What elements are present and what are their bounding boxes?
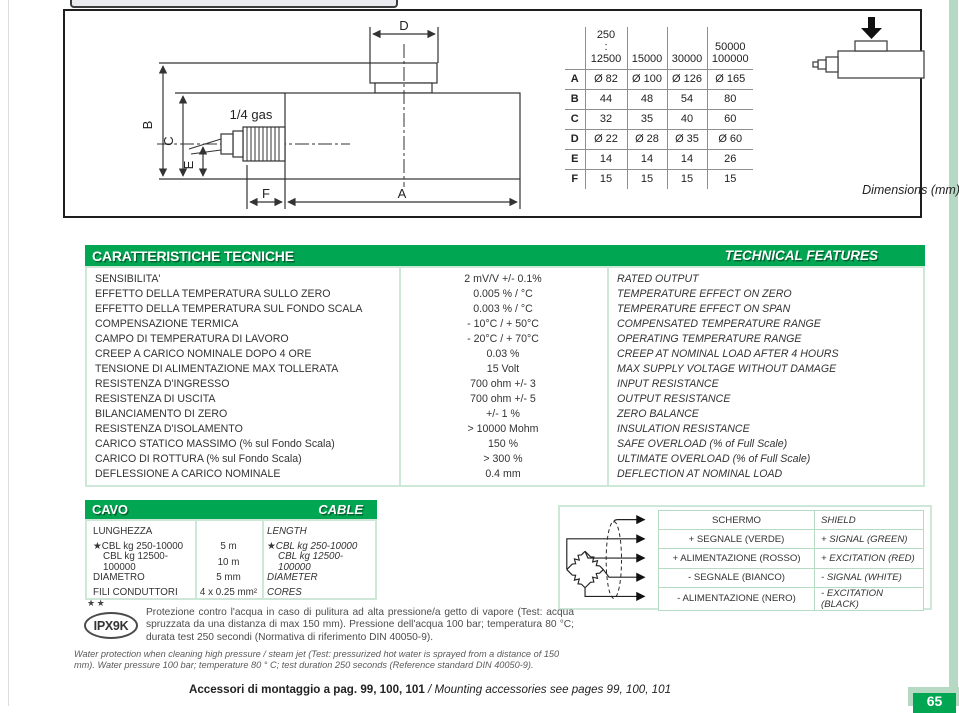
footer-text-en: / Mounting accessories see pages 99, 100… (425, 683, 671, 696)
protection-note-it: Protezione contro l'acqua in caso di pul… (146, 607, 574, 644)
tech-features-table: SENSIBILITA'2 mV/V +/- 0.1%RATED OUTPUT … (85, 266, 925, 487)
top-tab-remnant (70, 0, 398, 8)
dims-row-e: E 14 14 14 26 (565, 149, 753, 169)
right-green-stripe (949, 0, 958, 706)
tech-divider-2 (607, 268, 609, 485)
page-number: 65 (927, 693, 943, 709)
tech-row: CREEP A CARICO NOMINALE DOPO 4 ORE0.03 %… (87, 346, 923, 361)
dim-label-c: C (161, 136, 176, 145)
tech-row: DEFLESSIONE A CARICO NOMINALE0.4 mmDEFLE… (87, 467, 923, 482)
cable-row: DIAMETRO5 mmDIAMETER (87, 570, 375, 585)
dim-label-f: F (262, 186, 270, 201)
dimensions-table: 250 : 12500 15000 30000 50000 100000 A Ø… (565, 27, 753, 189)
dims-corner-cell (565, 27, 585, 69)
dimensions-note: Dimensions (mm) (787, 183, 959, 197)
wiring-row: - ALIMENTAZIONE (NERO)- EXCITATION (BLAC… (659, 587, 924, 610)
dims-row-d: D Ø 22 Ø 28 Ø 35 Ø 60 (565, 129, 753, 149)
tech-title-it: CARATTERISTICHE TECNICHE (92, 248, 294, 264)
tech-row: COMPENSAZIONE TERMICA- 10°C / + 50°CCOMP… (87, 316, 923, 331)
down-arrow-icon (861, 17, 882, 39)
cable-divider-2 (262, 521, 264, 598)
dims-capacity-header: 30000 (667, 27, 707, 69)
dims-row-b: B 44 48 54 80 (565, 89, 753, 109)
dims-row-c: C 32 35 40 60 (565, 109, 753, 129)
wiring-row: SCHERMOSHIELD (659, 511, 924, 530)
dimension-drawing-panel: D B C E F A 1/4 gas 250 : 12500 15000 30… (63, 9, 922, 218)
cable-row: LUNGHEZZALENGTH (87, 524, 375, 539)
cable-row: CBL kg 12500-10000010 mCBL kg 12500-1000… (87, 555, 375, 570)
tech-row: EFFETTO DELLA TEMPERATURA SUL FONDO SCAL… (87, 301, 923, 316)
tech-row: CAMPO DI TEMPERATURA DI LAVORO- 20°C / +… (87, 331, 923, 346)
cable-title-it: CAVO (92, 502, 128, 517)
wiring-panel: SCHERMOSHIELD + SEGNALE (VERDE)+ SIGNAL … (558, 505, 932, 610)
load-cell-icon (810, 15, 935, 87)
tech-row: BILANCIAMENTO DI ZERO+/- 1 %ZERO BALANCE (87, 406, 923, 421)
protection-note-en: Water protection when cleaning high pres… (74, 649, 582, 670)
tech-row: CARICO STATICO MASSIMO (% sul Fondo Scal… (87, 437, 923, 452)
dims-capacity-header: 50000 100000 (707, 27, 753, 69)
wiring-row: + ALIMENTAZIONE (ROSSO)+ EXCITATION (RED… (659, 549, 924, 568)
page-number-badge: 65 (913, 693, 956, 713)
dim-label-a: A (398, 186, 407, 201)
dim-label-b: B (140, 121, 155, 130)
page-edge-line (8, 0, 9, 706)
dims-capacity-header: 250 : 12500 (585, 27, 627, 69)
cable-divider-1 (195, 521, 197, 598)
ipx9k-badge: IPX9K (84, 612, 138, 639)
gas-thread-label: 1/4 gas (230, 107, 273, 122)
tech-row: CARICO DI ROTTURA (% sul Fondo Scala)> 3… (87, 452, 923, 467)
dims-row-a: A Ø 82 Ø 100 Ø 126 Ø 165 (565, 69, 753, 89)
footer-text-it: Accessori di montaggio a pag. 99, 100, 1… (189, 683, 425, 696)
tech-row: SENSIBILITA'2 mV/V +/- 0.1%RATED OUTPUT (87, 271, 923, 286)
wiring-row: - SEGNALE (BIANCO)- SIGNAL (WHITE) (659, 568, 924, 587)
tech-features-header: CARATTERISTICHE TECNICHE TECHNICAL FEATU… (85, 245, 925, 266)
dim-label-e: E (181, 160, 196, 169)
tech-row: EFFETTO DELLA TEMPERATURA SULLO ZERO0.00… (87, 286, 923, 301)
tech-row: TENSIONE DI ALIMENTAZIONE MAX TOLLERATA1… (87, 361, 923, 376)
tech-row: RESISTENZA D'INGRESSO700 ohm +/- 3INPUT … (87, 376, 923, 391)
dims-row-f: F 15 15 15 15 (565, 169, 753, 189)
cable-table: LUNGHEZZALENGTH ★CBL kg 250-100005 m★CBL… (85, 519, 377, 600)
footer-accessories: Accessori di montaggio a pag. 99, 100, 1… (110, 683, 750, 696)
tech-title-en: TECHNICAL FEATURES (725, 248, 878, 263)
wiring-table: SCHERMOSHIELD + SEGNALE (VERDE)+ SIGNAL … (658, 510, 924, 611)
bridge-diagram (562, 510, 658, 607)
tech-divider-1 (399, 268, 401, 485)
cable-title-en: CABLE (318, 502, 363, 517)
cable-header: CAVO CABLE (85, 500, 377, 519)
tech-row: RESISTENZA D'ISOLAMENTO> 10000 MohmINSUL… (87, 421, 923, 436)
load-cell-drawing: D B C E F A 1/4 gas (75, 13, 575, 215)
tech-row: RESISTENZA DI USCITA700 ohm +/- 5OUTPUT … (87, 391, 923, 406)
dims-capacity-header: 15000 (627, 27, 667, 69)
cable-row: FILI CONDUTTORI4 x 0.25 mm²CORES (87, 585, 375, 600)
wiring-row: + SEGNALE (VERDE)+ SIGNAL (GREEN) (659, 530, 924, 549)
star-marker: ★★ (87, 598, 106, 609)
dim-label-d: D (399, 18, 408, 33)
dims-header-row: 250 : 12500 15000 30000 50000 100000 (565, 27, 753, 69)
